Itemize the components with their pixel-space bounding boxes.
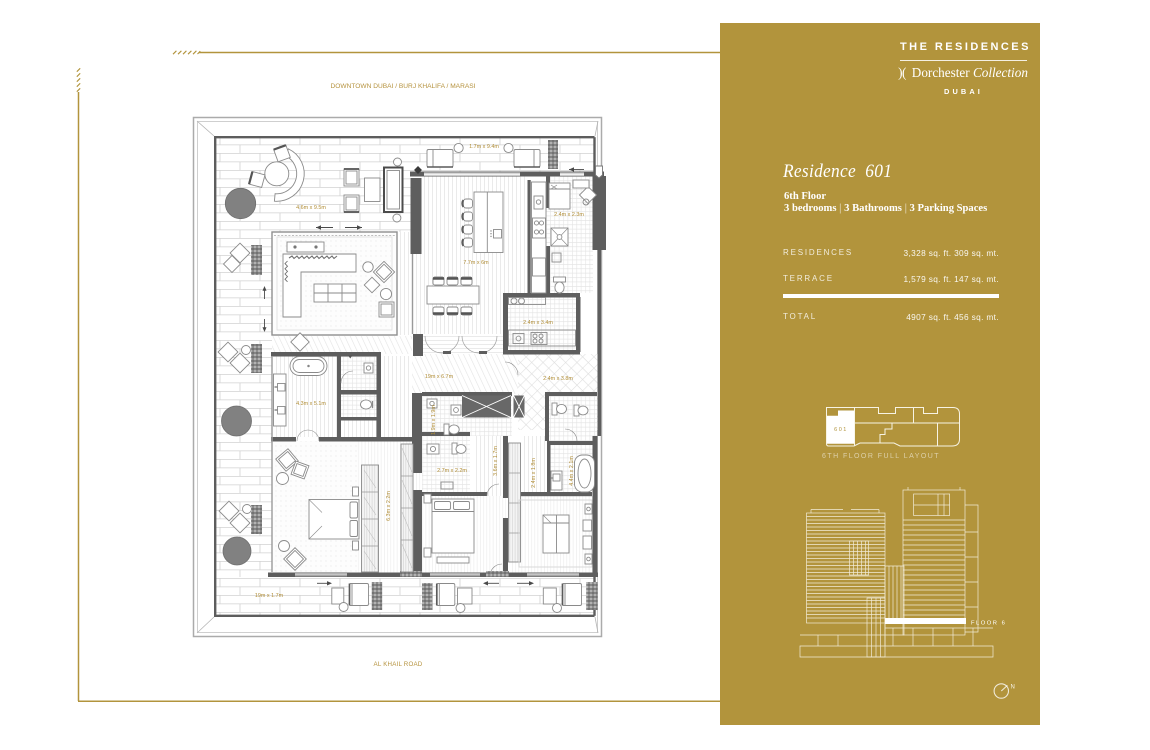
svg-text:4.6m x 9.5m: 4.6m x 9.5m bbox=[296, 205, 326, 211]
svg-text:N: N bbox=[1011, 685, 1015, 691]
svg-text:1.9m x 1.9m: 1.9m x 1.9m bbox=[431, 405, 437, 435]
svg-text:4.3m x 5.1m: 4.3m x 5.1m bbox=[296, 401, 326, 407]
svg-text:2.4m x 1.8m: 2.4m x 1.8m bbox=[531, 458, 537, 488]
svg-text:19m x 6.7m: 19m x 6.7m bbox=[425, 374, 454, 380]
svg-text:2.4m x 3.4m: 2.4m x 3.4m bbox=[523, 320, 553, 326]
svg-text:2.4m x 3.8m: 2.4m x 3.8m bbox=[543, 376, 573, 382]
svg-text:2.7m x 2.2m: 2.7m x 2.2m bbox=[437, 468, 467, 474]
svg-text:DOWNTOWN DUBAI / BURJ KHALIFA: DOWNTOWN DUBAI / BURJ KHALIFA / MARASI bbox=[331, 83, 476, 90]
svg-text:6.3m x 2.2m: 6.3m x 2.2m bbox=[386, 491, 392, 521]
svg-text:3.6m x 1.7m: 3.6m x 1.7m bbox=[493, 446, 499, 476]
svg-text:4.4m x 2.1m: 4.4m x 2.1m bbox=[569, 456, 575, 486]
svg-text:2.4m x 2.3m: 2.4m x 2.3m bbox=[554, 212, 584, 218]
svg-text:601: 601 bbox=[834, 427, 848, 433]
svg-text:AL KHAIL ROAD: AL KHAIL ROAD bbox=[374, 661, 423, 668]
svg-text:FLOOR 6: FLOOR 6 bbox=[971, 621, 1006, 627]
svg-text:1.7m x 9.4m: 1.7m x 9.4m bbox=[469, 144, 499, 150]
svg-text:19m x 1.7m: 19m x 1.7m bbox=[255, 593, 284, 599]
svg-text:7.7m x 6m: 7.7m x 6m bbox=[463, 260, 489, 266]
